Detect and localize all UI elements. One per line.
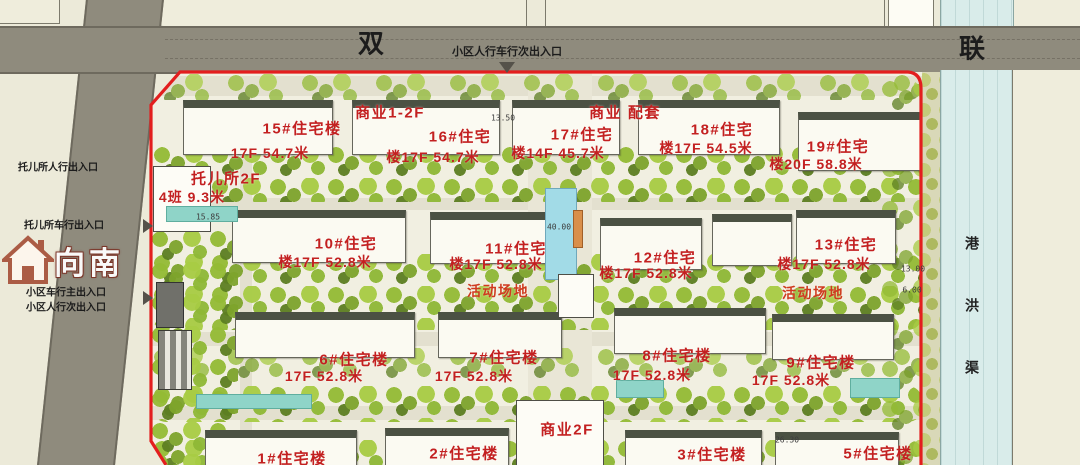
entrance-marker-icon bbox=[143, 291, 153, 305]
label-b9-spec: 17F 52.8米 bbox=[752, 370, 830, 390]
label-b8-spec: 17F 52.8米 bbox=[613, 365, 691, 385]
site-plan-map: 双 联 小区人行车行次出入口 港洪渠 托儿所人行出入口 托儿所车行出入口 小区车… bbox=[0, 0, 1080, 465]
label-commercial-support: 商业 配套 bbox=[589, 102, 661, 123]
label-b2-name: 2#住宅楼 bbox=[429, 443, 498, 464]
dim-2: 15.85 bbox=[196, 213, 220, 222]
road-lane-line bbox=[165, 39, 1080, 40]
dim-3: 13.00 bbox=[901, 265, 925, 274]
label-nursery-spec: 4班 9.3米 bbox=[159, 187, 225, 207]
label-b15-spec: 17F 54.7米 bbox=[231, 143, 309, 163]
dim-4: 6.00 bbox=[902, 286, 921, 295]
label-b17-spec: 楼14F 45.7米 bbox=[511, 143, 604, 163]
label-b6-spec: 17F 52.8米 bbox=[285, 366, 363, 386]
canal-name: 港洪渠 bbox=[962, 236, 982, 422]
city-block bbox=[1012, 0, 1080, 28]
label-b8-name: 8#住宅楼 bbox=[642, 345, 711, 366]
watermark-text: 向南 bbox=[54, 238, 124, 283]
label-b18-spec: 楼17F 54.5米 bbox=[659, 138, 752, 158]
entrance-marker-icon bbox=[143, 219, 153, 233]
dim-1: 13.50 bbox=[491, 114, 515, 123]
entrance-label-top: 小区人行车行次出入口 bbox=[452, 43, 562, 59]
label-activity-area-2: 活动场地 bbox=[782, 283, 844, 303]
label-b3-name: 3#住宅楼 bbox=[677, 444, 746, 465]
label-b10-name: 10#住宅 bbox=[315, 233, 378, 254]
label-b11-spec: 楼17F 52.8米 bbox=[449, 254, 542, 274]
city-block bbox=[545, 0, 885, 27]
label-b7-spec: 17F 52.8米 bbox=[435, 366, 513, 386]
city-block bbox=[888, 0, 934, 28]
label-activity-area-1: 活动场地 bbox=[467, 281, 529, 301]
entrance-label-nursery-veh: 托儿所车行出入口 bbox=[24, 217, 104, 232]
canal-north-segment bbox=[940, 0, 1014, 28]
road-name-right: 联 bbox=[959, 29, 987, 66]
tree-grove bbox=[152, 74, 922, 100]
label-b1-name: 1#住宅楼 bbox=[257, 448, 326, 465]
garage-structure bbox=[156, 282, 184, 328]
label-b10-spec: 楼17F 52.8米 bbox=[278, 252, 371, 272]
label-b18-name: 18#住宅 bbox=[691, 119, 754, 140]
city-block bbox=[150, 0, 527, 27]
dim-5: 26.30 bbox=[775, 436, 799, 445]
label-b13-name: 13#住宅 bbox=[815, 234, 878, 255]
club-house bbox=[558, 274, 594, 318]
label-b7-name: 7#住宅楼 bbox=[469, 347, 538, 368]
city-block bbox=[0, 0, 60, 24]
label-b16-name: 16#住宅 bbox=[429, 126, 492, 147]
watermark-logo: 向南 bbox=[2, 234, 124, 286]
label-b16-spec: 楼17F 54.7米 bbox=[386, 147, 479, 167]
label-b13-spec: 楼17F 52.8米 bbox=[777, 254, 870, 274]
city-block-east bbox=[1012, 70, 1080, 465]
label-b12-spec: 楼17F 52.8米 bbox=[599, 263, 692, 283]
entrance-label-ped-secondary: 小区人行次出入口 bbox=[26, 299, 106, 314]
dim-pool: 40.00 bbox=[547, 223, 571, 232]
label-b15-name: 15#住宅楼 bbox=[262, 118, 341, 139]
water-feature bbox=[850, 378, 900, 398]
water-feature bbox=[196, 394, 312, 409]
label-b17-name: 17#住宅 bbox=[551, 124, 614, 145]
label-commercial-strip: 商业1-2F bbox=[355, 102, 425, 123]
label-b19-spec: 楼20F 58.8米 bbox=[769, 154, 862, 174]
road-lane-line bbox=[165, 58, 1080, 59]
house-icon bbox=[2, 234, 54, 286]
road-name-left: 双 bbox=[358, 24, 386, 61]
pool-feature bbox=[573, 210, 583, 248]
entrance-label-nursery-ped: 托儿所人行出入口 bbox=[18, 159, 98, 174]
label-commercial-2f: 商业2F bbox=[540, 419, 594, 440]
garage-ramp bbox=[158, 330, 192, 390]
label-nursery-name: 托儿所2F bbox=[191, 168, 261, 189]
label-b5-name: 5#住宅楼 bbox=[843, 443, 912, 464]
